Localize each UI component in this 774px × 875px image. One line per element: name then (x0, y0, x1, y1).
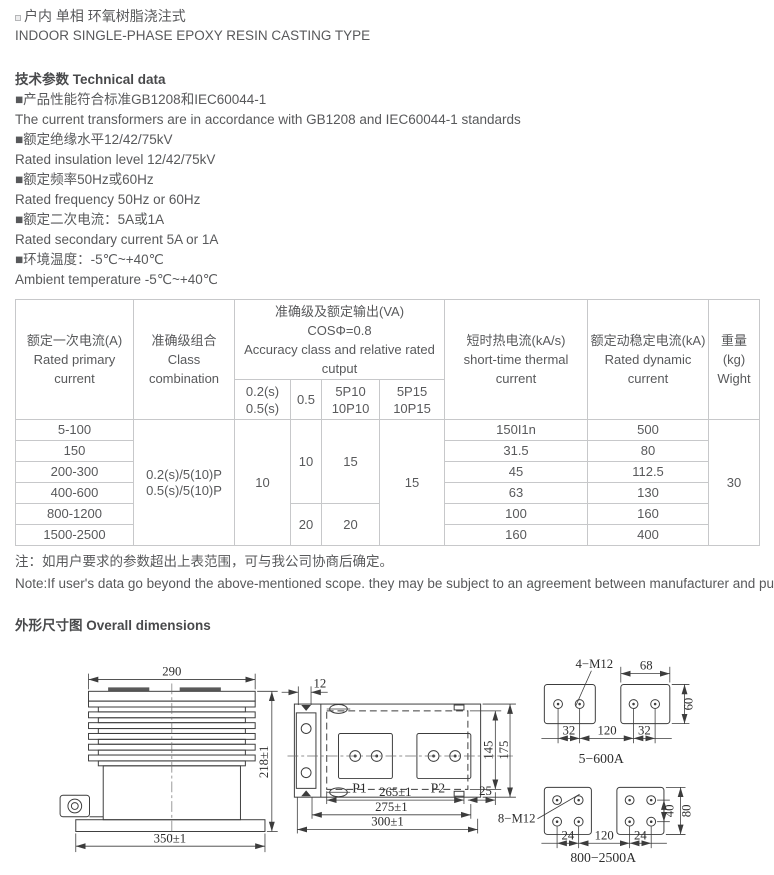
dim-pad-small-width: 68 (640, 659, 653, 673)
spec-item-en: Rated insulation level 12/42/75kV (15, 150, 760, 170)
subcol-header-5p10: 5P1010P10 (322, 380, 380, 420)
top-view: P1 P2 12 145 175 25 265±1 (282, 676, 516, 833)
subcol-header-05: 0.5 (291, 380, 322, 420)
dim-pad-large-hole-rows: 40 (663, 805, 677, 818)
dim-top-span-mid: 275±1 (375, 800, 407, 814)
bolt-spec-large: 8−M12 (498, 812, 536, 826)
subcol-header-02s: 0.2(s)0.5(s) (235, 380, 291, 420)
caption-pads-large: 800−2500A (570, 850, 636, 865)
cell-thermal-current: 63 (445, 483, 588, 504)
clamp-mark-bottom (301, 790, 311, 796)
cell-thermal-current: 160 (445, 525, 588, 546)
clamp-mark-top (301, 705, 311, 711)
subcol-header-5p15: 5P1510P15 (380, 380, 445, 420)
cell-acc-05-top: 10 (291, 420, 322, 504)
cell-acc-02s: 10 (235, 420, 291, 546)
spec-item-en: The current transformers are in accordan… (15, 110, 760, 130)
spec-item-en: Ambient temperature -5℃~+40℃ (15, 270, 760, 290)
cell-primary-current: 1500-2500 (16, 525, 134, 546)
terminal-label-p2: P2 (431, 780, 446, 795)
technical-data-table: 额定一次电流(A)Rated primarycurrent 准确级组合Class… (15, 299, 760, 546)
note-en: Note:If user's data go beyond the above-… (15, 574, 760, 594)
square-bullet-icon (15, 15, 21, 21)
dim-pad-large-hole-span-left: 24 (562, 828, 575, 842)
spec-item-zh: ■额定二次电流：5A或1A (15, 210, 760, 230)
page-title-zh-row: 户内 单相 环氧树脂浇注式 (15, 6, 760, 26)
cell-acc-05-bottom: 20 (291, 504, 322, 546)
cell-dynamic-current: 160 (588, 504, 709, 525)
cell-primary-current: 400-600 (16, 483, 134, 504)
dim-pad-small-hole-span-left: 32 (562, 723, 575, 737)
cell-thermal-current: 150I1n (445, 420, 588, 441)
cell-dynamic-current: 500 (588, 420, 709, 441)
cell-thermal-current: 100 (445, 504, 588, 525)
cell-primary-current: 150 (16, 441, 134, 462)
dim-pad-small-height: 60 (681, 698, 695, 711)
dim-pad-small-hole-span-right: 32 (638, 723, 651, 737)
overall-dimensions-drawing: 290 218±1 350±1 (15, 638, 760, 875)
page-title-zh: 户内 单相 环氧树脂浇注式 (24, 8, 186, 24)
note-zh: 注：如用户要求的参数超出上表范围，可与我公司协商后确定。 (15, 552, 760, 572)
col-header-class-combination: 准确级组合Classcombination (134, 300, 235, 420)
cell-dynamic-current: 130 (588, 483, 709, 504)
terminal-pads-small: 4−M12 68 60 32 120 32 5−600A (541, 657, 695, 766)
dim-pad-large-center-span: 120 (595, 828, 614, 842)
terminal-label-p1: P1 (352, 780, 367, 795)
cell-acc-5p10-bottom: 20 (322, 504, 380, 546)
spec-item-zh: ■额定频率50Hz或60Hz (15, 170, 760, 190)
datasheet-page: 户内 单相 环氧树脂浇注式 INDOOR SINGLE-PHASE EPOXY … (0, 0, 774, 875)
dim-top-span-inner: 265±1 (379, 785, 411, 799)
cell-dynamic-current: 80 (588, 441, 709, 462)
dim-top-edge-offset: 25 (479, 784, 492, 798)
cell-primary-current: 5-100 (16, 420, 134, 441)
dim-pad-large-hole-span-right: 24 (634, 828, 647, 842)
col-header-accuracy-group: 准确级及额定输出(VA)COSΦ=0.8Accuracy class and r… (235, 300, 445, 380)
col-header-primary-current: 额定一次电流(A)Rated primarycurrent (16, 300, 134, 420)
dim-pad-small-center-span: 120 (598, 723, 617, 737)
dim-top-offset: 12 (313, 676, 326, 690)
overall-dimensions-heading: 外形尺寸图 Overall dimensions (15, 616, 760, 636)
terminal-pads-large: 8−M12 40 80 24 120 24 800−2500A (498, 787, 693, 865)
col-header-weight: 重量(kg)Wight (709, 300, 760, 420)
spec-item-zh: ■环境温度：-5℃~+40℃ (15, 250, 760, 270)
cell-acc-5p10-top: 15 (322, 420, 380, 504)
cell-acc-5p15: 15 (380, 420, 445, 546)
spec-list: ■产品性能符合标准GB1208和IEC60044-1 The current t… (15, 90, 760, 290)
cell-thermal-current: 45 (445, 462, 588, 483)
cell-class-combination: 0.2(s)/5(10)P0.5(s)/5(10)P (134, 420, 235, 546)
caption-pads-small: 5−600A (579, 751, 624, 766)
col-header-thermal-current: 短时热电流(kA/s)short-time thermalcurrent (445, 300, 588, 420)
dim-side-bottom-width: 350±1 (154, 831, 186, 845)
side-view: 290 218±1 350±1 (60, 665, 278, 852)
spec-item-en: Rated frequency 50Hz or 60Hz (15, 190, 760, 210)
cell-weight: 30 (709, 420, 760, 546)
dim-top-inner-height: 145 (481, 741, 495, 760)
spec-item-zh: ■产品性能符合标准GB1208和IEC60044-1 (15, 90, 760, 110)
technical-data-heading: 技术参数 Technical data (15, 70, 760, 90)
cell-thermal-current: 31.5 (445, 441, 588, 462)
cell-dynamic-current: 400 (588, 525, 709, 546)
dim-side-height: 218±1 (257, 746, 271, 778)
table-row: 5-100 0.2(s)/5(10)P0.5(s)/5(10)P 10 10 1… (16, 420, 760, 441)
spec-item-zh: ■额定绝缘水平12/42/75kV (15, 130, 760, 150)
dim-top-outer-height: 175 (497, 741, 511, 760)
cell-dynamic-current: 112.5 (588, 462, 709, 483)
dim-side-top-width: 290 (162, 665, 181, 679)
cell-primary-current: 800-1200 (16, 504, 134, 525)
bolt-spec-small: 4−M12 (576, 657, 614, 671)
dim-top-span-outer: 300±1 (371, 815, 403, 829)
col-header-dynamic-current: 额定动稳定电流(kA)Rated dynamiccurrent (588, 300, 709, 420)
cell-primary-current: 200-300 (16, 462, 134, 483)
page-title-en: INDOOR SINGLE-PHASE EPOXY RESIN CASTING … (15, 26, 760, 46)
dim-pad-large-height: 80 (679, 805, 693, 818)
spec-item-en: Rated secondary current 5A or 1A (15, 230, 760, 250)
